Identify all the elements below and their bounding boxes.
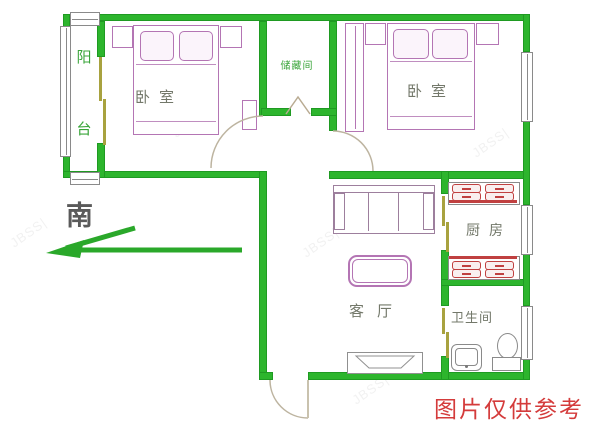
south-arrow-head: [46, 240, 84, 258]
bathroom-label: 卫生间: [451, 307, 493, 326]
disclaimer-text: 图片仅供参考: [434, 390, 584, 423]
bedroom-right-label: 卧室: [398, 80, 464, 101]
storage-label: 储藏间: [270, 57, 324, 72]
entrance-door-arc: [270, 380, 308, 418]
kitchen-label: 厨房: [460, 220, 518, 240]
bedroom-left-label: 卧室: [126, 86, 192, 107]
floorplan-canvas: JBSS| JBSS| JBSS| JBSS| JBSS|: [0, 0, 601, 423]
balcony-label: 阳 台: [73, 46, 95, 139]
bedroom1-door-arc: [211, 116, 263, 168]
living-room-label: 客厅: [344, 300, 410, 321]
compass-south-label: 南: [66, 194, 93, 233]
storage-double-door: [286, 97, 310, 114]
bedroom2-door-arc: [333, 131, 373, 171]
